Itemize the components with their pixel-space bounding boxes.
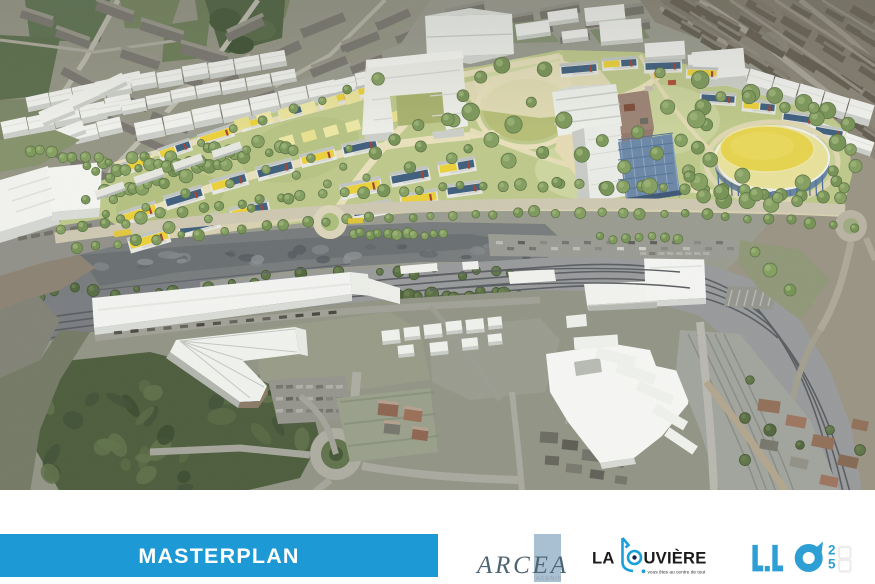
svg-text:ARCEA: ARCEA <box>475 552 569 579</box>
svg-text:UVIÈRE: UVIÈRE <box>644 549 707 568</box>
svg-text:MASTERPLAN: MASTERPLAN <box>138 544 299 568</box>
svg-text:5: 5 <box>828 557 836 572</box>
svg-text:ACENIS: ACENIS <box>536 576 562 582</box>
svg-text:LA: LA <box>592 549 615 568</box>
svg-text:2: 2 <box>828 543 836 558</box>
svg-text:vous êtes au centre de tout: vous êtes au centre de tout <box>648 570 707 576</box>
